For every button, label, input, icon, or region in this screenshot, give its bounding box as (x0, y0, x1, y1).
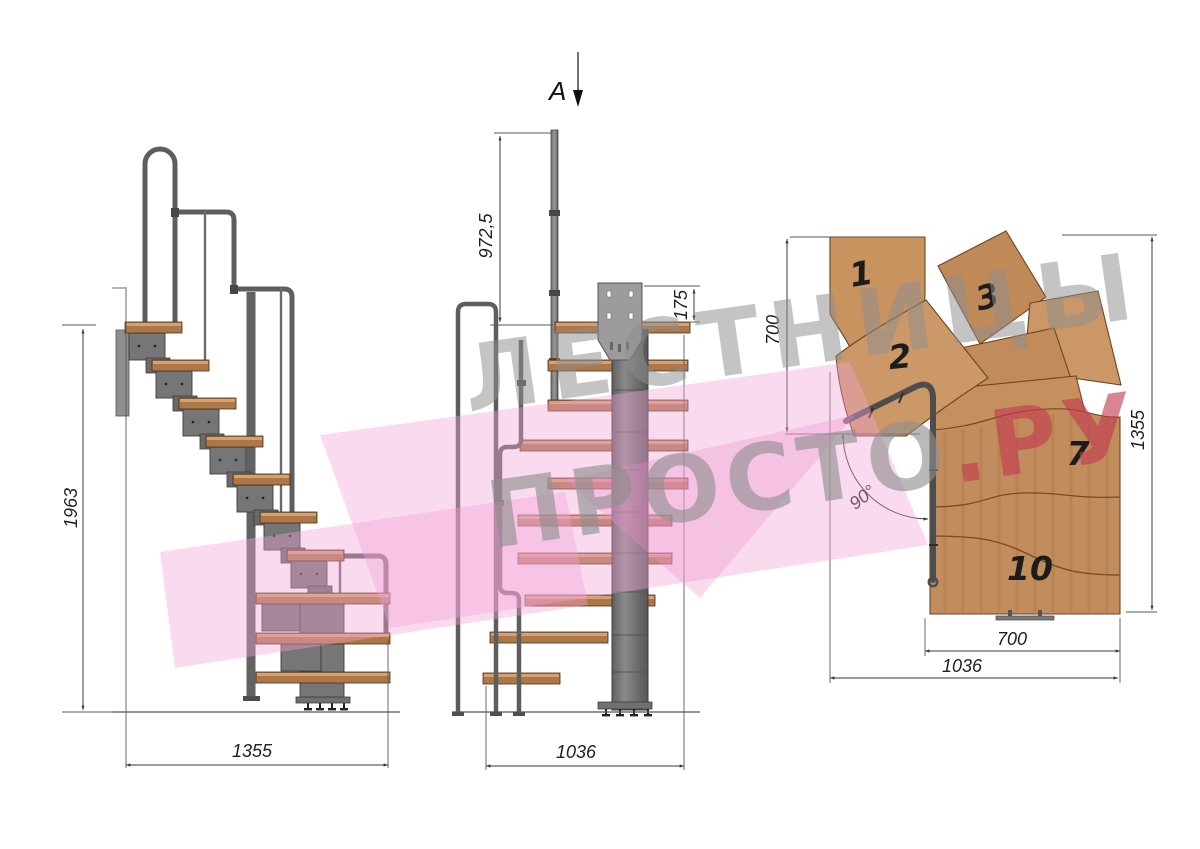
dimension-rail-post-height: 972,5 (476, 133, 553, 325)
base-flange (296, 697, 350, 703)
column-base-flange (598, 702, 652, 709)
tread-number-10: 10 (1007, 549, 1053, 588)
dim-label-1355-side: 1355 (232, 741, 273, 761)
dim-label-9725: 972,5 (476, 212, 496, 258)
handrail-loop (145, 149, 175, 324)
staircase-drawing: 1963 1355 A (0, 0, 1200, 849)
dim-label-1036-plan: 1036 (942, 656, 983, 676)
section-arrow-icon (573, 90, 583, 107)
dim-label-700-bottom: 700 (997, 629, 1027, 649)
technical-drawing-page: 1963 1355 A (0, 0, 1200, 849)
wall-mount-plate (116, 330, 129, 416)
section-a-marker: A (547, 52, 583, 107)
dim-label-1036-front: 1036 (556, 742, 597, 762)
section-a-label: A (547, 76, 566, 106)
newel-post-base (243, 696, 260, 701)
dim-label-1963: 1963 (61, 488, 81, 528)
dimension-side-height: 1963 (61, 325, 112, 712)
